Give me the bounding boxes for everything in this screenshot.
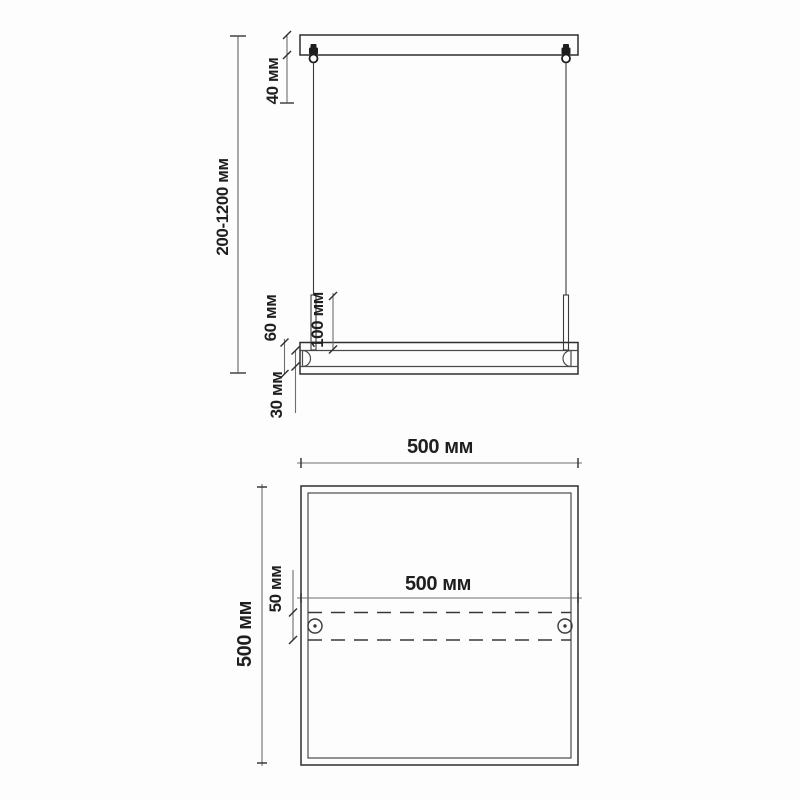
mount-nub	[311, 44, 317, 48]
mount-hole-left	[308, 619, 322, 633]
ceiling-mount-bar	[300, 35, 578, 55]
dim-label-bar-length: 500 мм	[405, 573, 471, 595]
dim-label-fixture-height: 60 мм	[261, 295, 280, 342]
dim-label-canopy-height: 40 мм	[263, 58, 282, 105]
fixture-bar	[300, 343, 578, 375]
dim-label-suspension-range: 200-1200 мм	[213, 158, 232, 255]
mount-hole-center	[313, 624, 316, 627]
dim-overall-width: 500 мм	[297, 436, 582, 468]
front-view-dimensions: 200-1200 мм 40 мм 60 мм 100 мм	[213, 31, 337, 418]
suspension-mount-left	[309, 44, 318, 63]
dim-overall-depth: 500 мм	[234, 484, 267, 766]
mount-hole-right	[558, 619, 572, 633]
mount-ball-joint	[562, 55, 570, 63]
suspension-mount-right	[562, 44, 571, 63]
top-view	[301, 486, 578, 765]
front-view	[300, 35, 578, 374]
dim-canopy-height: 40 мм	[263, 31, 294, 104]
dimension-drawing-canvas: 200-1200 мм 40 мм 60 мм 100 мм	[0, 0, 800, 800]
fixture-end-cap-right	[563, 351, 571, 367]
dim-fixture-height: 60 мм	[261, 295, 289, 378]
dim-label-stem-length: 100 мм	[308, 292, 327, 348]
dim-suspension-range: 200-1200 мм	[213, 36, 246, 373]
frame-outer	[301, 486, 578, 765]
drawing-svg: 200-1200 мм 40 мм 60 мм 100 мм	[0, 0, 800, 800]
fixture-bar-outline	[300, 343, 578, 375]
mount-body	[309, 48, 318, 55]
mount-ball-joint	[310, 55, 318, 63]
dim-stem-length: 100 мм	[308, 292, 337, 354]
dim-label-bar-width: 50 мм	[266, 566, 285, 613]
dim-bar-width: 50 мм	[266, 566, 297, 644]
dim-label-tube-height: 30 мм	[267, 372, 286, 419]
fixture-end-cap-left	[303, 351, 311, 367]
dim-label-overall-depth: 500 мм	[234, 601, 256, 667]
dim-bar-length: 500 мм	[297, 573, 582, 603]
frame-inner	[308, 493, 571, 758]
mount-nub	[563, 44, 569, 48]
dim-tube-height: 30 мм	[267, 347, 300, 419]
mount-hole-center	[563, 624, 566, 627]
dim-label-overall-width: 500 мм	[407, 436, 473, 458]
mount-body	[562, 48, 571, 55]
